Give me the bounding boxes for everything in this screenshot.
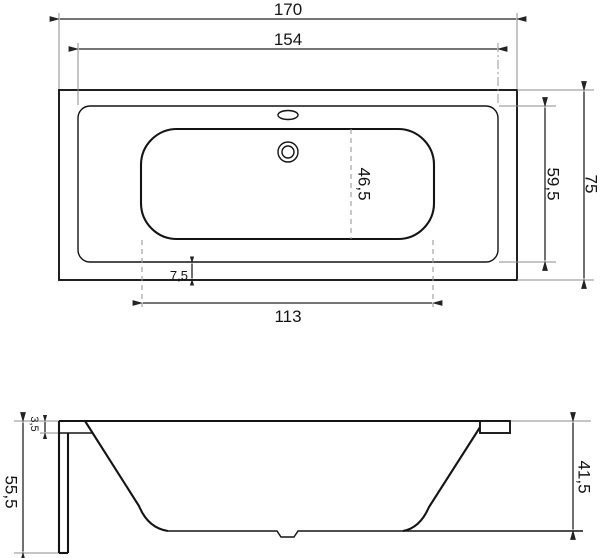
dim-label-inner-length: 154: [274, 30, 302, 49]
dim-label-overall-height: 55,5: [2, 475, 21, 508]
dim-label-overall-width: 75: [582, 175, 600, 194]
bathtub-technical-drawing: 170 154 59,5 75 46,5: [0, 0, 600, 558]
dim-label-rim-width: 7,5: [170, 268, 188, 283]
dim-label-floor-width: 46,5: [355, 167, 374, 200]
dim-label-overall-length: 170: [274, 0, 302, 19]
dim-floor-width: 46,5: [355, 167, 374, 200]
basin-bottom-line: [168, 531, 583, 537]
dim-overall-height: 55,5: [2, 423, 24, 552]
dim-label-inner-depth: 41,5: [575, 460, 594, 493]
dim-label-rim-opening-width: 59,5: [544, 167, 563, 200]
left-inner-wall: [85, 421, 168, 531]
dim-inner-depth: 41,5: [573, 423, 594, 530]
dim-rim-thickness: 3,5: [28, 416, 45, 432]
side-view: 55,5 3,5 41,5: [2, 416, 594, 553]
right-inner-wall: [403, 421, 484, 531]
top-view: 170 154 59,5 75 46,5: [59, 0, 600, 326]
tub-outer-outline: [59, 90, 517, 280]
right-rim-lip: [480, 421, 510, 433]
dim-label-rim-thickness: 3,5: [28, 416, 40, 431]
drawing-canvas: 170 154 59,5 75 46,5: [0, 0, 600, 558]
dim-label-floor-length: 113: [274, 307, 301, 326]
